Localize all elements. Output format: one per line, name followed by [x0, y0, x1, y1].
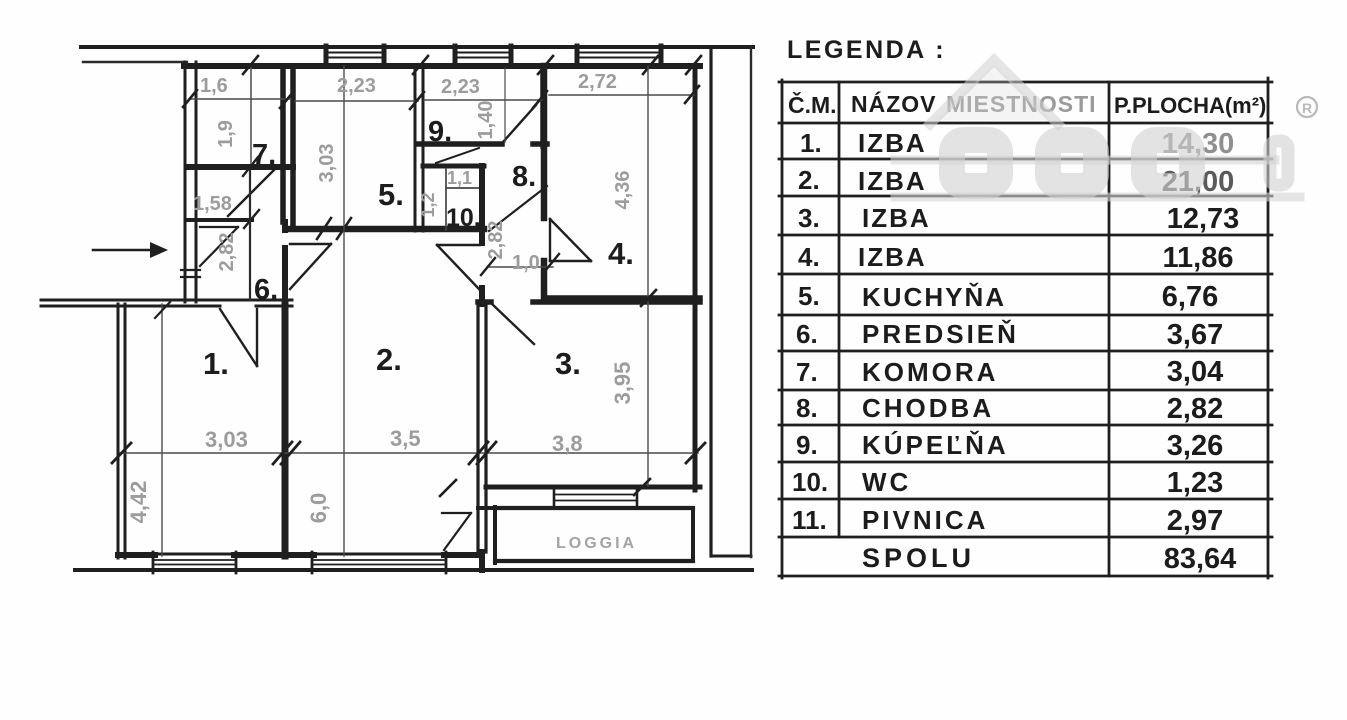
svg-text:2,97: 2,97 — [1167, 505, 1223, 537]
svg-text:R: R — [1302, 100, 1312, 116]
svg-text:CHODBA: CHODBA — [862, 393, 994, 423]
svg-text:11.: 11. — [792, 505, 827, 535]
svg-text:LEGENDA :: LEGENDA : — [787, 36, 946, 64]
svg-text:NÁZOV: NÁZOV — [851, 90, 937, 117]
svg-text:2,82: 2,82 — [1167, 393, 1223, 425]
svg-text:9.: 9. — [796, 430, 818, 460]
svg-text:2,72: 2,72 — [578, 71, 617, 93]
svg-text:8.: 8. — [512, 161, 536, 193]
svg-text:83,64: 83,64 — [1164, 543, 1237, 575]
svg-text:3,8: 3,8 — [552, 431, 583, 456]
svg-text:12,73: 12,73 — [1167, 203, 1240, 235]
svg-text:7.: 7. — [252, 139, 276, 171]
svg-text:1,6: 1,6 — [200, 75, 228, 97]
svg-text:6.: 6. — [796, 319, 818, 349]
svg-text:3,5: 3,5 — [390, 426, 421, 451]
svg-text:PREDSIEŇ: PREDSIEŇ — [862, 319, 1019, 349]
svg-text:1.: 1. — [800, 128, 822, 158]
svg-text:5.: 5. — [378, 177, 404, 212]
svg-text:8.: 8. — [796, 393, 818, 423]
svg-text:KÚPEĽŇA: KÚPEĽŇA — [862, 430, 1009, 460]
svg-text:4.: 4. — [798, 242, 820, 272]
svg-text:IZBA: IZBA — [858, 242, 927, 272]
svg-text:1.: 1. — [203, 346, 229, 381]
svg-text:3,04: 3,04 — [1167, 356, 1223, 388]
svg-text:1,58: 1,58 — [193, 193, 232, 215]
svg-text:2,82: 2,82 — [216, 233, 238, 272]
svg-text:6,76: 6,76 — [1162, 281, 1218, 313]
svg-text:7.: 7. — [796, 357, 818, 387]
svg-text:3,95: 3,95 — [610, 362, 635, 405]
svg-text:KOMORA: KOMORA — [862, 357, 998, 387]
svg-text:2,23: 2,23 — [441, 76, 480, 98]
svg-text:3.: 3. — [798, 203, 820, 233]
svg-text:11,86: 11,86 — [1163, 242, 1234, 274]
svg-text:3,26: 3,26 — [1167, 430, 1223, 462]
svg-text:IZBA: IZBA — [858, 166, 927, 196]
svg-text:1,2: 1,2 — [418, 192, 438, 217]
svg-text:2,23: 2,23 — [337, 75, 376, 97]
svg-text:3.: 3. — [555, 346, 581, 381]
svg-text:KUCHYŇA: KUCHYŇA — [862, 282, 1006, 312]
svg-text:1,23: 1,23 — [1167, 467, 1223, 499]
svg-text:5.: 5. — [798, 281, 820, 311]
svg-text:2.: 2. — [376, 342, 402, 377]
svg-text:4,36: 4,36 — [612, 171, 634, 210]
svg-text:10.: 10. — [446, 204, 481, 232]
svg-text:10.: 10. — [792, 467, 828, 497]
svg-text:WC: WC — [862, 467, 911, 497]
svg-text:2.: 2. — [798, 165, 820, 195]
svg-text:6.: 6. — [254, 274, 278, 306]
svg-text:9.: 9. — [428, 116, 452, 148]
svg-text:Č.M.: Č.M. — [788, 91, 837, 118]
svg-text:IZBA: IZBA — [858, 128, 927, 158]
svg-text:3,03: 3,03 — [205, 427, 248, 452]
svg-text:1,40: 1,40 — [475, 101, 497, 140]
svg-text:3,03: 3,03 — [316, 144, 338, 183]
svg-text:6,0: 6,0 — [306, 493, 331, 524]
svg-text:4,42: 4,42 — [126, 481, 151, 524]
svg-text:1,1: 1,1 — [447, 168, 472, 188]
svg-text:PIVNICA: PIVNICA — [862, 505, 988, 535]
svg-text:P.PLOCHA(m²): P.PLOCHA(m²) — [1114, 93, 1266, 118]
svg-text:IZBA: IZBA — [862, 203, 931, 233]
svg-text:1,9: 1,9 — [215, 120, 237, 148]
svg-text:3,67: 3,67 — [1167, 319, 1223, 351]
svg-text:4.: 4. — [608, 236, 634, 271]
svg-text:SPOLU: SPOLU — [862, 543, 975, 573]
svg-text:2,82: 2,82 — [485, 221, 507, 260]
svg-text:LOGGIA: LOGGIA — [556, 535, 637, 552]
svg-text:1,0: 1,0 — [512, 252, 540, 274]
